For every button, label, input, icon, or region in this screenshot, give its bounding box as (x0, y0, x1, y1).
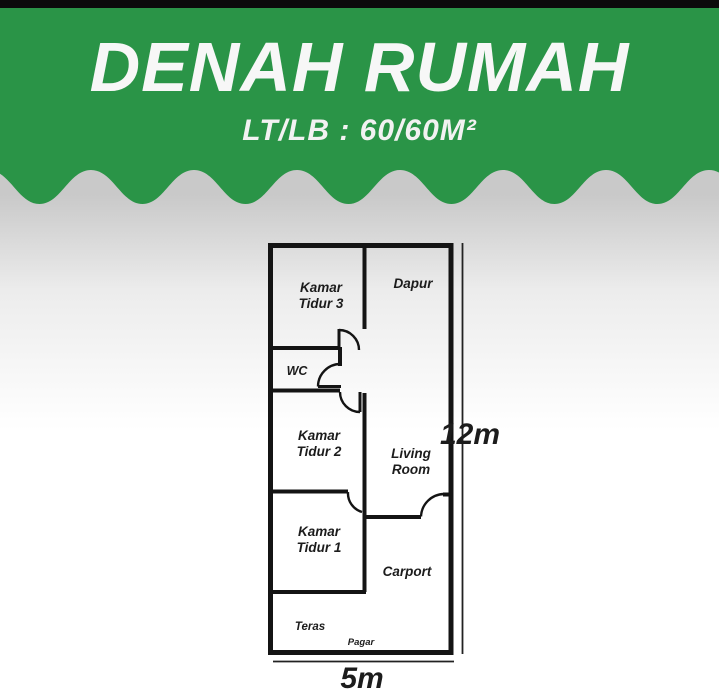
label-kamar-tidur-2-line2: Tidur 2 (297, 444, 342, 459)
door-arc-wc (318, 364, 341, 387)
label-kamar-tidur-1-line1: Kamar (298, 524, 341, 539)
door-arc-kamar-tidur-1 (348, 492, 362, 512)
floor-plan: Kamar Tidur 3 Dapur WC Kamar Tidur 2 Liv… (0, 0, 719, 690)
label-wc: WC (287, 364, 309, 378)
label-dapur: Dapur (393, 276, 433, 291)
label-dimension-5m: 5m (340, 662, 383, 690)
label-kamar-tidur-2-line1: Kamar (298, 428, 341, 443)
label-dimension-12m: 12m (440, 418, 500, 451)
label-kamar-tidur-3-line1: Kamar (300, 280, 343, 295)
door-arc-kamar-tidur-2 (340, 392, 360, 412)
label-kamar-tidur-1-line2: Tidur 1 (297, 540, 342, 555)
label-living-room-line1: Living (391, 446, 432, 461)
label-pagar: Pagar (348, 637, 376, 648)
label-carport: Carport (383, 564, 432, 579)
inner-walls (268, 245, 452, 592)
label-kamar-tidur-3-line2: Tidur 3 (299, 296, 344, 311)
label-living-room-line2: Room (392, 462, 430, 477)
label-teras: Teras (295, 621, 325, 633)
doors (318, 329, 444, 517)
door-arc-front-entrance (421, 494, 444, 517)
